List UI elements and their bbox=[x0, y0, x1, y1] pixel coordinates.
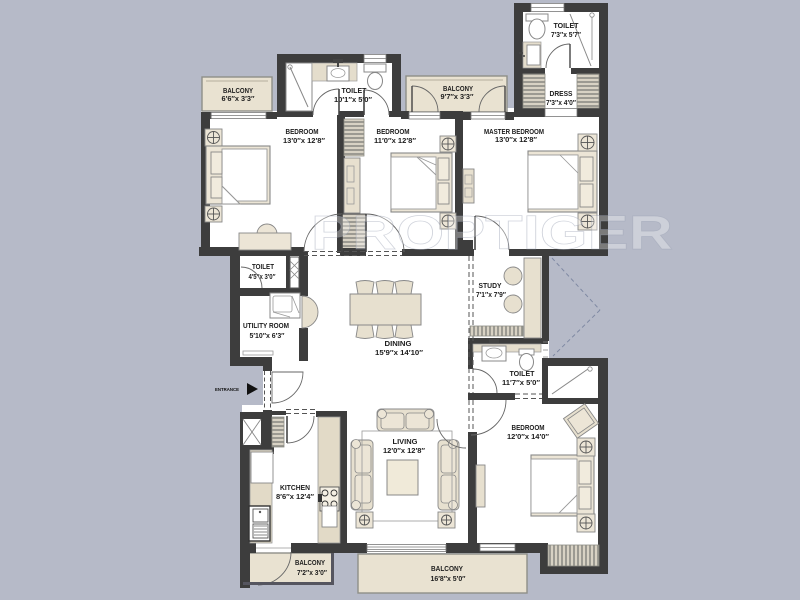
svg-text:7′1″x 7′9″: 7′1″x 7′9″ bbox=[476, 291, 507, 299]
svg-text:6′6″x 3′3″: 6′6″x 3′3″ bbox=[222, 95, 256, 103]
svg-text:13′0″x 12′8″: 13′0″x 12′8″ bbox=[283, 137, 326, 145]
svg-text:ENTRANCE: ENTRANCE bbox=[215, 387, 239, 392]
svg-text:9′7″x 3′3″: 9′7″x 3′3″ bbox=[441, 93, 475, 101]
svg-text:TOILET: TOILET bbox=[554, 21, 579, 30]
svg-text:BEDROOM: BEDROOM bbox=[286, 127, 319, 136]
svg-text:DRESS: DRESS bbox=[550, 89, 573, 98]
svg-text:MASTER BEDROOM: MASTER BEDROOM bbox=[484, 127, 544, 136]
svg-text:7′3″x 4′0″: 7′3″x 4′0″ bbox=[546, 99, 577, 107]
svg-text:16′8″x 5′0″: 16′8″x 5′0″ bbox=[431, 575, 467, 583]
svg-text:BEDROOM: BEDROOM bbox=[377, 127, 410, 136]
svg-text:STUDY: STUDY bbox=[479, 281, 502, 290]
svg-text:BALCONY: BALCONY bbox=[295, 558, 325, 567]
svg-text:12′0″x 12′8″: 12′0″x 12′8″ bbox=[383, 447, 426, 455]
svg-text:4′5″x 3′0″: 4′5″x 3′0″ bbox=[249, 273, 276, 281]
svg-text:BEDROOM: BEDROOM bbox=[512, 423, 545, 432]
svg-text:5′10″x 6′3″: 5′10″x 6′3″ bbox=[250, 332, 286, 340]
svg-text:TOILET: TOILET bbox=[510, 369, 535, 378]
svg-text:BALCONY: BALCONY bbox=[223, 86, 253, 95]
svg-text:KITCHEN: KITCHEN bbox=[280, 483, 310, 492]
svg-text:UTILITY ROOM: UTILITY ROOM bbox=[243, 321, 289, 330]
svg-text:8′6″x 12′4″: 8′6″x 12′4″ bbox=[276, 493, 315, 501]
svg-text:LIVING: LIVING bbox=[393, 437, 418, 446]
svg-text:11′7″x 5′0″: 11′7″x 5′0″ bbox=[502, 379, 541, 387]
svg-text:7′3″x 5′7″: 7′3″x 5′7″ bbox=[551, 31, 582, 39]
svg-text:11′0″x 12′8″: 11′0″x 12′8″ bbox=[374, 137, 417, 145]
svg-text:15′9″x 14′10″: 15′9″x 14′10″ bbox=[375, 349, 424, 357]
svg-text:TOILET: TOILET bbox=[252, 262, 274, 271]
svg-text:PROPTIGER: PROPTIGER bbox=[311, 207, 673, 260]
svg-text:BALCONY: BALCONY bbox=[443, 84, 473, 93]
svg-text:DINING: DINING bbox=[385, 339, 412, 348]
svg-text:13′0″x 12′8″: 13′0″x 12′8″ bbox=[495, 136, 538, 144]
svg-text:7′2″x 3′0″: 7′2″x 3′0″ bbox=[297, 569, 328, 577]
svg-text:BALCONY: BALCONY bbox=[431, 564, 463, 573]
svg-text:TOILET: TOILET bbox=[342, 86, 367, 95]
svg-text:12′0″x 14′0″: 12′0″x 14′0″ bbox=[507, 433, 550, 441]
